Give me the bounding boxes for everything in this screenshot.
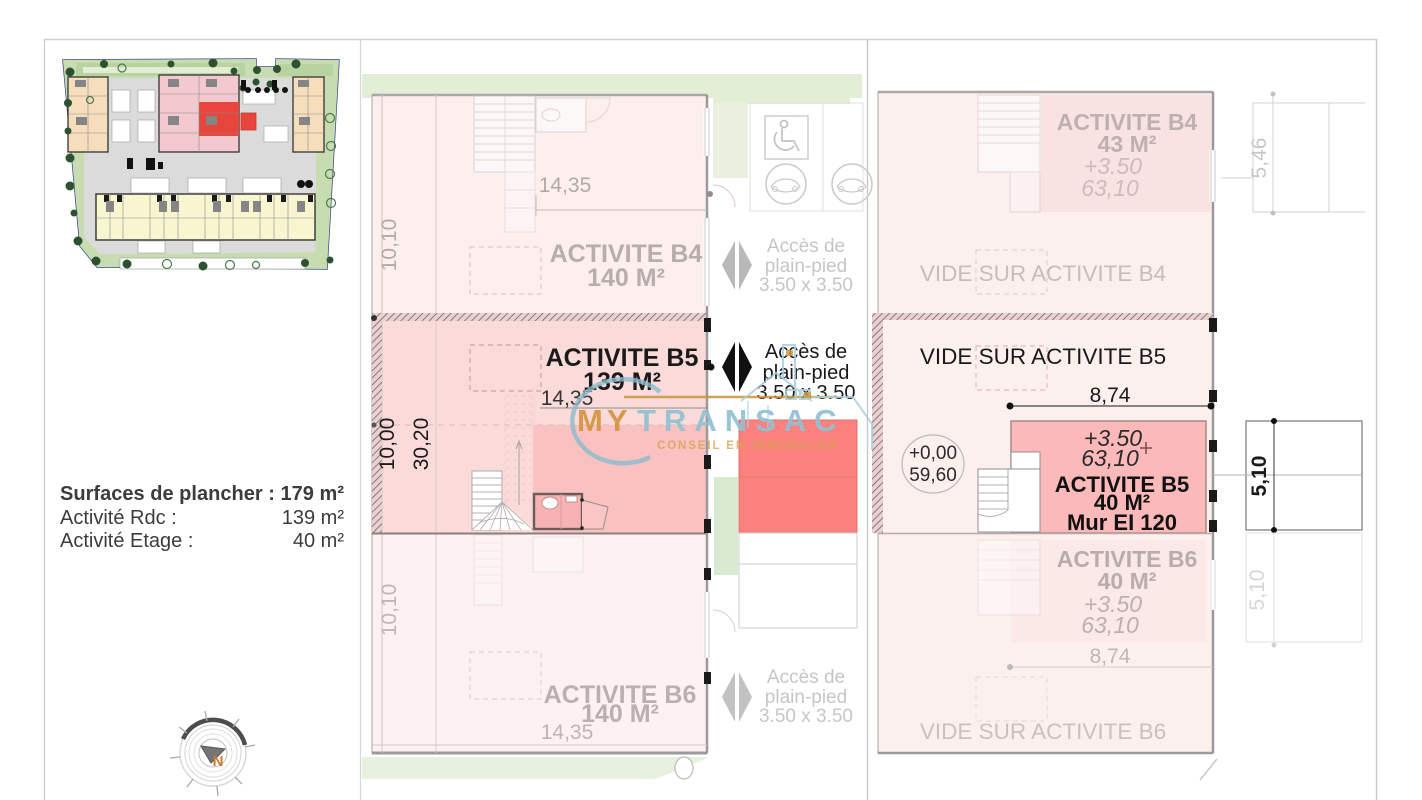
svg-text:40 m²: 40 m²: [293, 530, 344, 552]
svg-text:8,74: 8,74: [1090, 384, 1131, 407]
svg-text:plain-pied: plain-pied: [765, 256, 847, 277]
svg-text:5,10: 5,10: [1246, 570, 1269, 611]
svg-text:140 M²: 140 M²: [587, 264, 665, 292]
svg-text:5,46: 5,46: [1248, 138, 1271, 179]
svg-text:Accès de: Accès de: [765, 341, 847, 363]
svg-text:Activité Rdc :: Activité Rdc :: [60, 507, 177, 529]
svg-text:VIDE SUR ACTIVITE B4: VIDE SUR ACTIVITE B4: [920, 261, 1166, 286]
svg-text:VIDE SUR ACTIVITE B6: VIDE SUR ACTIVITE B6: [920, 719, 1166, 744]
svg-text:3.50 x 3.50: 3.50 x 3.50: [759, 275, 853, 296]
svg-text:14,35: 14,35: [539, 174, 592, 197]
svg-text:Accès de: Accès de: [767, 667, 845, 688]
svg-text:14,35: 14,35: [541, 721, 594, 744]
svg-text:30,20: 30,20: [410, 418, 433, 471]
svg-text:Mur EI 120: Mur EI 120: [1067, 510, 1177, 535]
svg-text:63,10: 63,10: [1081, 445, 1139, 471]
svg-text:Accès de: Accès de: [767, 236, 845, 257]
svg-text:139 m²: 139 m²: [282, 507, 345, 529]
svg-text:TRANSAC: TRANSAC: [637, 403, 845, 438]
svg-text:VIDE SUR ACTIVITE B5: VIDE SUR ACTIVITE B5: [920, 344, 1166, 369]
svg-text:CONSEIL EN IMMOBILIER: CONSEIL EN IMMOBILIER: [657, 440, 839, 452]
svg-text:10,10: 10,10: [378, 584, 401, 637]
svg-text:+0,00: +0,00: [909, 443, 957, 464]
svg-text:10,10: 10,10: [378, 219, 401, 272]
svg-text:63,10: 63,10: [1081, 175, 1139, 201]
svg-text:63,10: 63,10: [1081, 612, 1139, 638]
svg-text:139 M²: 139 M²: [583, 368, 661, 396]
svg-text:Activité Etage :: Activité Etage :: [60, 530, 193, 552]
svg-text:3.50 x 3.50: 3.50 x 3.50: [759, 706, 853, 727]
svg-text:MY: MY: [577, 403, 632, 438]
svg-text:59,60: 59,60: [909, 465, 957, 486]
svg-text:N: N: [213, 753, 224, 770]
svg-text:Surfaces de plancher : 179 m²: Surfaces de plancher : 179 m²: [60, 483, 344, 505]
svg-text:10,00: 10,00: [376, 418, 399, 471]
svg-text:8,74: 8,74: [1090, 645, 1131, 668]
svg-text:plain-pied: plain-pied: [765, 687, 847, 708]
svg-text:5,10: 5,10: [1248, 456, 1271, 497]
